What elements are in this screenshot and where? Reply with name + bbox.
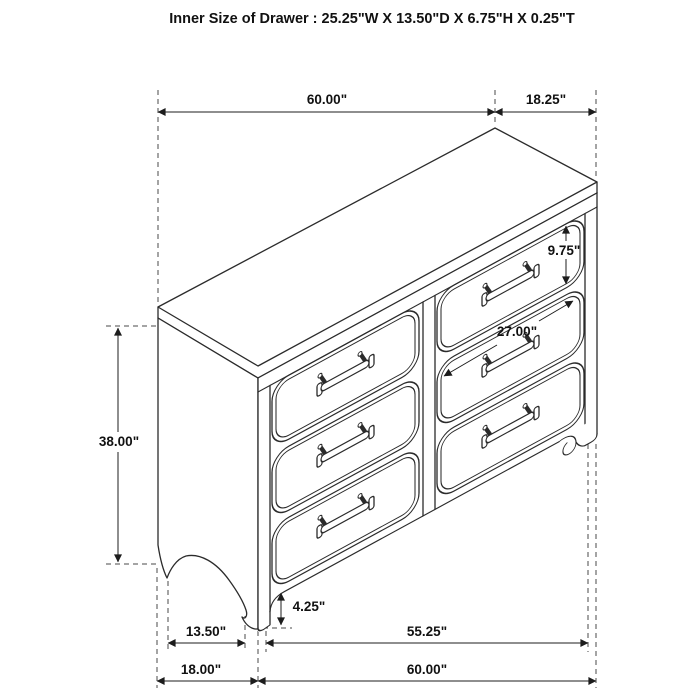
dim-label-base-side-depth: 13.50"	[186, 624, 226, 639]
dim-label-drawer-width: 27.00"	[497, 324, 537, 339]
dim-label-overall-height: 38.00"	[99, 434, 139, 449]
dim-label-top-depth: 18.25"	[526, 92, 566, 107]
diagram-page: Inner Size of Drawer : 25.25"W X 13.50"D…	[0, 0, 700, 700]
dresser-dimension-diagram: Inner Size of Drawer : 25.25"W X 13.50"D…	[0, 0, 700, 700]
dim-label-top-width: 60.00"	[307, 92, 347, 107]
dim-label-base-width: 60.00"	[407, 662, 447, 677]
dim-label-base-inner-width: 55.25"	[407, 624, 447, 639]
dim-label-drawer-height: 9.75"	[548, 243, 581, 258]
diagram-title: Inner Size of Drawer : 25.25"W X 13.50"D…	[169, 11, 575, 27]
dim-label-base-depth: 18.00"	[181, 662, 221, 677]
dim-label-foot-clearance: 4.25"	[293, 599, 326, 614]
dresser-side-panel	[158, 318, 258, 629]
